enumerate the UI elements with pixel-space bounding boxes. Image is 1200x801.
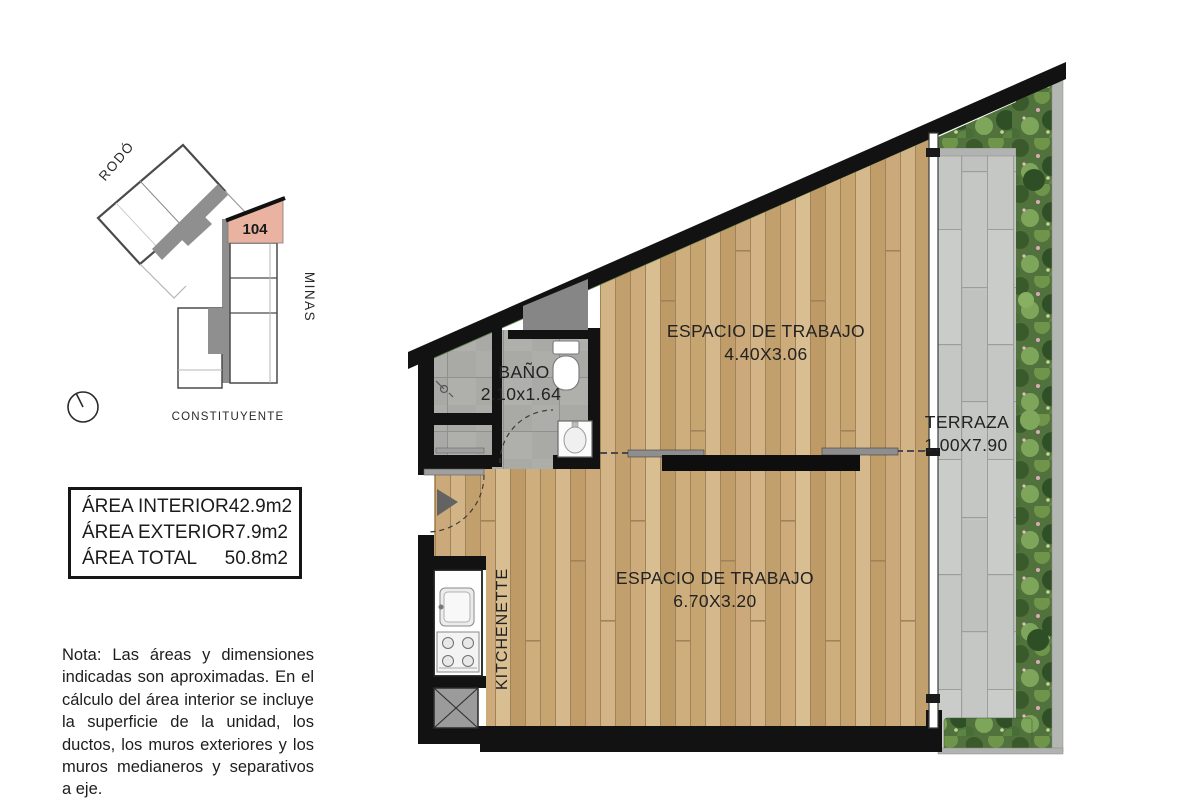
kitchenette-label: KITCHENETTE (494, 568, 511, 690)
workspace-upper-label: ESPACIO DE TRABAJO (667, 321, 865, 341)
unit-stack (230, 243, 277, 383)
workspace-main-label: ESPACIO DE TRABAJO (616, 568, 814, 588)
hedge (944, 718, 1032, 750)
area-value: 7.9m2 (235, 520, 288, 546)
corridor (222, 219, 230, 383)
bathroom-dims: 2.10x1.64 (481, 384, 561, 404)
street-constituyente-label: CONSTITUYENTE (172, 411, 285, 423)
bottom-wall (480, 726, 942, 752)
terrace-bottom-sill (938, 748, 1063, 754)
duct-shaft (434, 688, 478, 728)
bathroom-label: BAÑO (498, 361, 549, 382)
area-label: ÁREA INTERIOR (82, 494, 229, 520)
north-indicator-icon (68, 392, 98, 422)
unit-number-label: 104 (242, 221, 268, 238)
street-rodo-label: RODÓ (96, 138, 137, 183)
bath-sink (558, 421, 592, 457)
stove (437, 632, 479, 672)
area-value: 42.9m2 (229, 494, 292, 520)
area-row-total: ÁREA TOTAL 50.8m2 (82, 546, 288, 572)
terrace-label: TERRAZA (925, 412, 1009, 432)
closet-sliding-door (436, 448, 484, 453)
area-row-exterior: ÁREA EXTERIOR 7.9m2 (82, 520, 288, 546)
note-text: Nota: Las áreas y dimensiones indicadas … (62, 644, 314, 801)
area-table: ÁREA INTERIOR 42.9m2 ÁREA EXTERIOR 7.9m2… (68, 487, 302, 579)
area-value: 50.8m2 (225, 546, 288, 572)
street-minas-label: MINAS (302, 272, 317, 322)
kitchenette-counter (434, 570, 482, 676)
locator-map: RODÓ 104 MINAS CONSTITUYENTE (52, 112, 322, 442)
duct-void (523, 279, 588, 330)
unit-104-highlight: 104 (226, 198, 285, 243)
toilet (553, 341, 579, 390)
terrace-edge-wall (1052, 76, 1063, 752)
area-row-interior: ÁREA INTERIOR 42.9m2 (82, 494, 288, 520)
workspace-main-dims: 6.70X3.20 (673, 591, 756, 611)
terrace-dims: 1.00X7.90 (924, 435, 1007, 455)
area-label: ÁREA EXTERIOR (82, 520, 235, 546)
terrace-top-sill (938, 148, 1016, 156)
area-label: ÁREA TOTAL (82, 546, 197, 572)
building-b (178, 308, 224, 388)
workspace-upper-dims: 4.40X3.06 (724, 344, 807, 364)
